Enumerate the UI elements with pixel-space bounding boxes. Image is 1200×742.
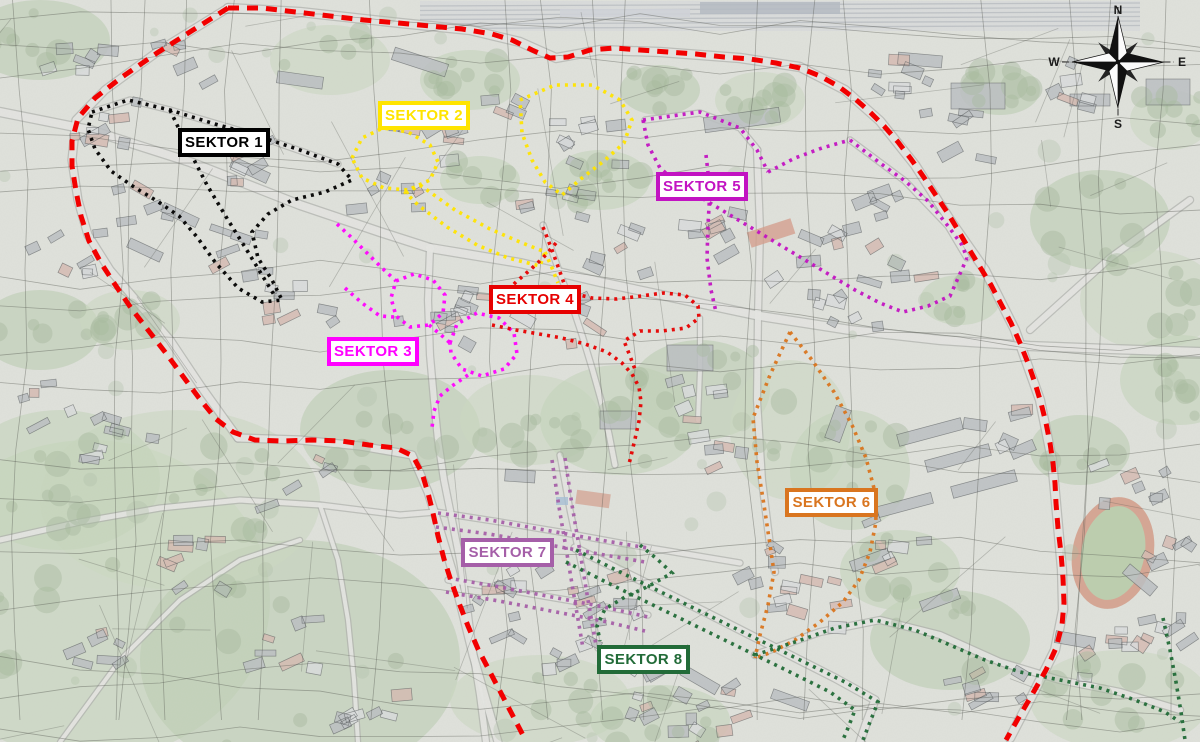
sector-1-label: SEKTOR 1 [178, 128, 270, 157]
compass-label-west: W [1048, 55, 1060, 69]
sector-6-label: SEKTOR 6 [785, 488, 878, 517]
sector-2-label: SEKTOR 2 [378, 101, 470, 130]
compass-label-north: N [1114, 3, 1123, 17]
sector-3-label: SEKTOR 3 [327, 337, 419, 366]
map-canvas: N S W E [0, 0, 1200, 742]
sector-5-label: SEKTOR 5 [656, 172, 748, 201]
sector-8-label: SEKTOR 8 [597, 645, 690, 674]
compass-label-south: S [1114, 117, 1122, 131]
aerial-sector-map: N S W E SEKTOR 1SEKTOR 2SEKTOR 3SEKTOR 4… [0, 0, 1200, 742]
compass-label-east: E [1178, 55, 1186, 69]
photo-grain [0, 0, 1200, 742]
sector-4-label: SEKTOR 4 [489, 285, 581, 314]
sector-7-label: SEKTOR 7 [461, 538, 554, 567]
